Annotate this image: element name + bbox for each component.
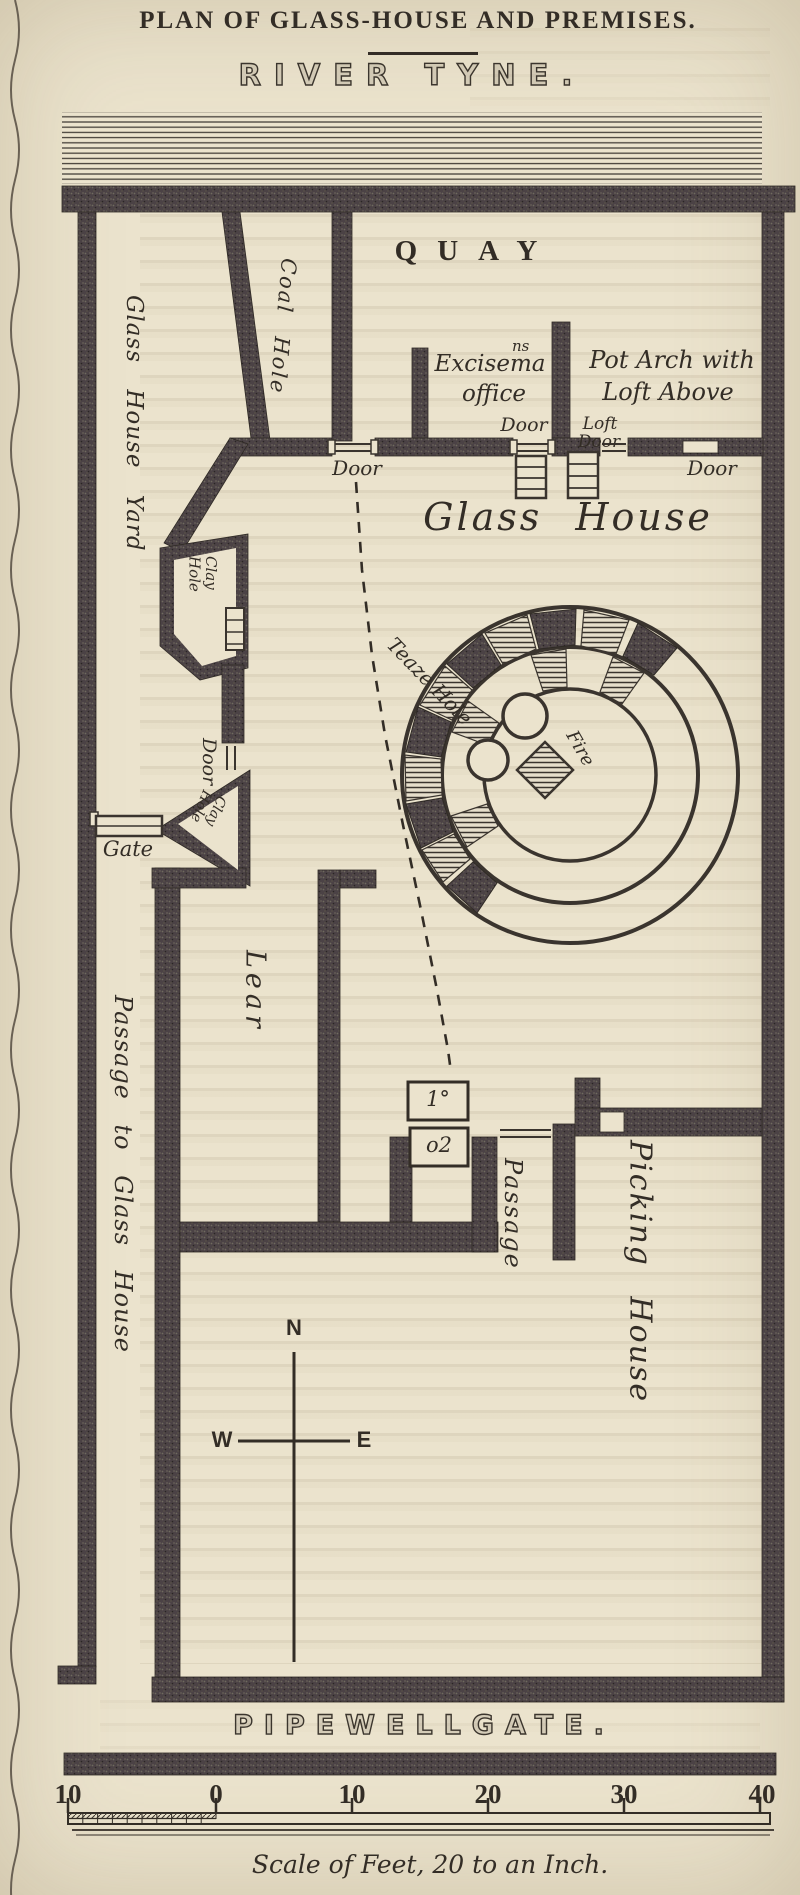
clay-hole2-label: ClayHole: [187, 787, 228, 830]
glass-house-label: Glass House: [423, 498, 713, 538]
glass-house-yard-label: Glass House Yard: [122, 295, 146, 552]
marker-2-label: o2: [426, 1134, 452, 1156]
fire-label: Fire: [562, 728, 597, 770]
scale-tick-10l: 10: [55, 1780, 82, 1808]
title-rule: [368, 52, 478, 55]
pot-arch-label-line1: Pot Arch with: [589, 348, 755, 373]
picking-house-label: Picking House: [624, 1140, 656, 1403]
compass-north-label: N: [286, 1316, 302, 1339]
exciseman-office-label: office: [462, 382, 526, 406]
scale-tick-30: 30: [611, 1780, 638, 1808]
yard-door-label: Door: [198, 738, 218, 785]
passage-to-glass-house-label: Passage to Glass House: [110, 995, 135, 1353]
labels-layer: PLAN OF GLASS-HOUSE AND PREMISES. RIVER …: [0, 0, 800, 1895]
pipewellgate-label: PIPEWELLGATE.: [233, 1712, 615, 1740]
gate-label: Gate: [103, 838, 153, 860]
exciseman-label: Excisema: [435, 352, 546, 376]
compass-east-label: E: [357, 1428, 372, 1451]
page-title: PLAN OF GLASS-HOUSE AND PREMISES.: [139, 8, 697, 34]
glass-house-door-label: Door: [332, 458, 382, 479]
coal-hole-label: Coal Hole: [266, 257, 300, 395]
pot-arch-door-label: Door: [687, 458, 737, 479]
scale-tick-10r: 10: [339, 1780, 366, 1808]
lear-label: Lear: [240, 950, 268, 1033]
teaze-hole-label: Teaze Hole: [383, 634, 476, 729]
pot-arch-label-line2: Loft Above: [602, 380, 733, 405]
scale-tick-20: 20: [475, 1780, 502, 1808]
loft-door-label-line2: Door: [578, 434, 620, 452]
scanned-plan-page: PLAN OF GLASS-HOUSE AND PREMISES. RIVER …: [0, 0, 800, 1895]
clay-hole1-label: ClayHole: [186, 556, 219, 592]
quay-label: QUAY: [395, 236, 558, 266]
passage-label: Passage: [500, 1158, 525, 1270]
office-door-label: Door: [500, 416, 547, 436]
river-tyne-label: RIVER TYNE.: [239, 60, 586, 90]
scale-tick-40: 40: [749, 1780, 776, 1808]
scale-tick-0: 0: [209, 1780, 223, 1808]
marker-1-label: 1°: [426, 1088, 450, 1110]
compass-west-label: W: [212, 1428, 233, 1451]
scale-caption: Scale of Feet, 20 to an Inch.: [252, 1852, 608, 1878]
